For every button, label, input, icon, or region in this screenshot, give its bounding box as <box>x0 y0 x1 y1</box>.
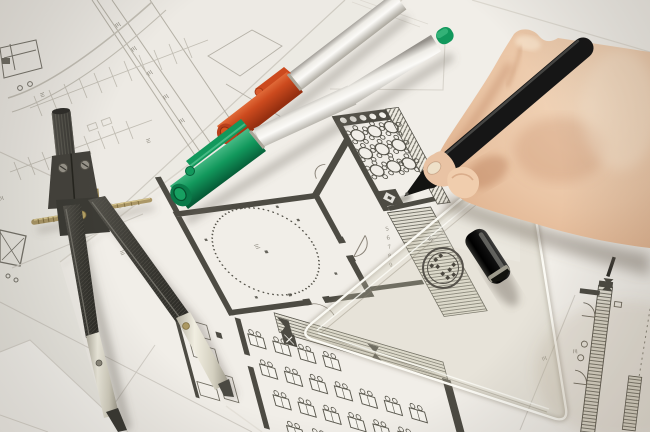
photo-canvas: 5 6 7 8 9 <box>0 0 650 432</box>
photo-architect-desk: 5 6 7 8 9 <box>0 0 650 432</box>
